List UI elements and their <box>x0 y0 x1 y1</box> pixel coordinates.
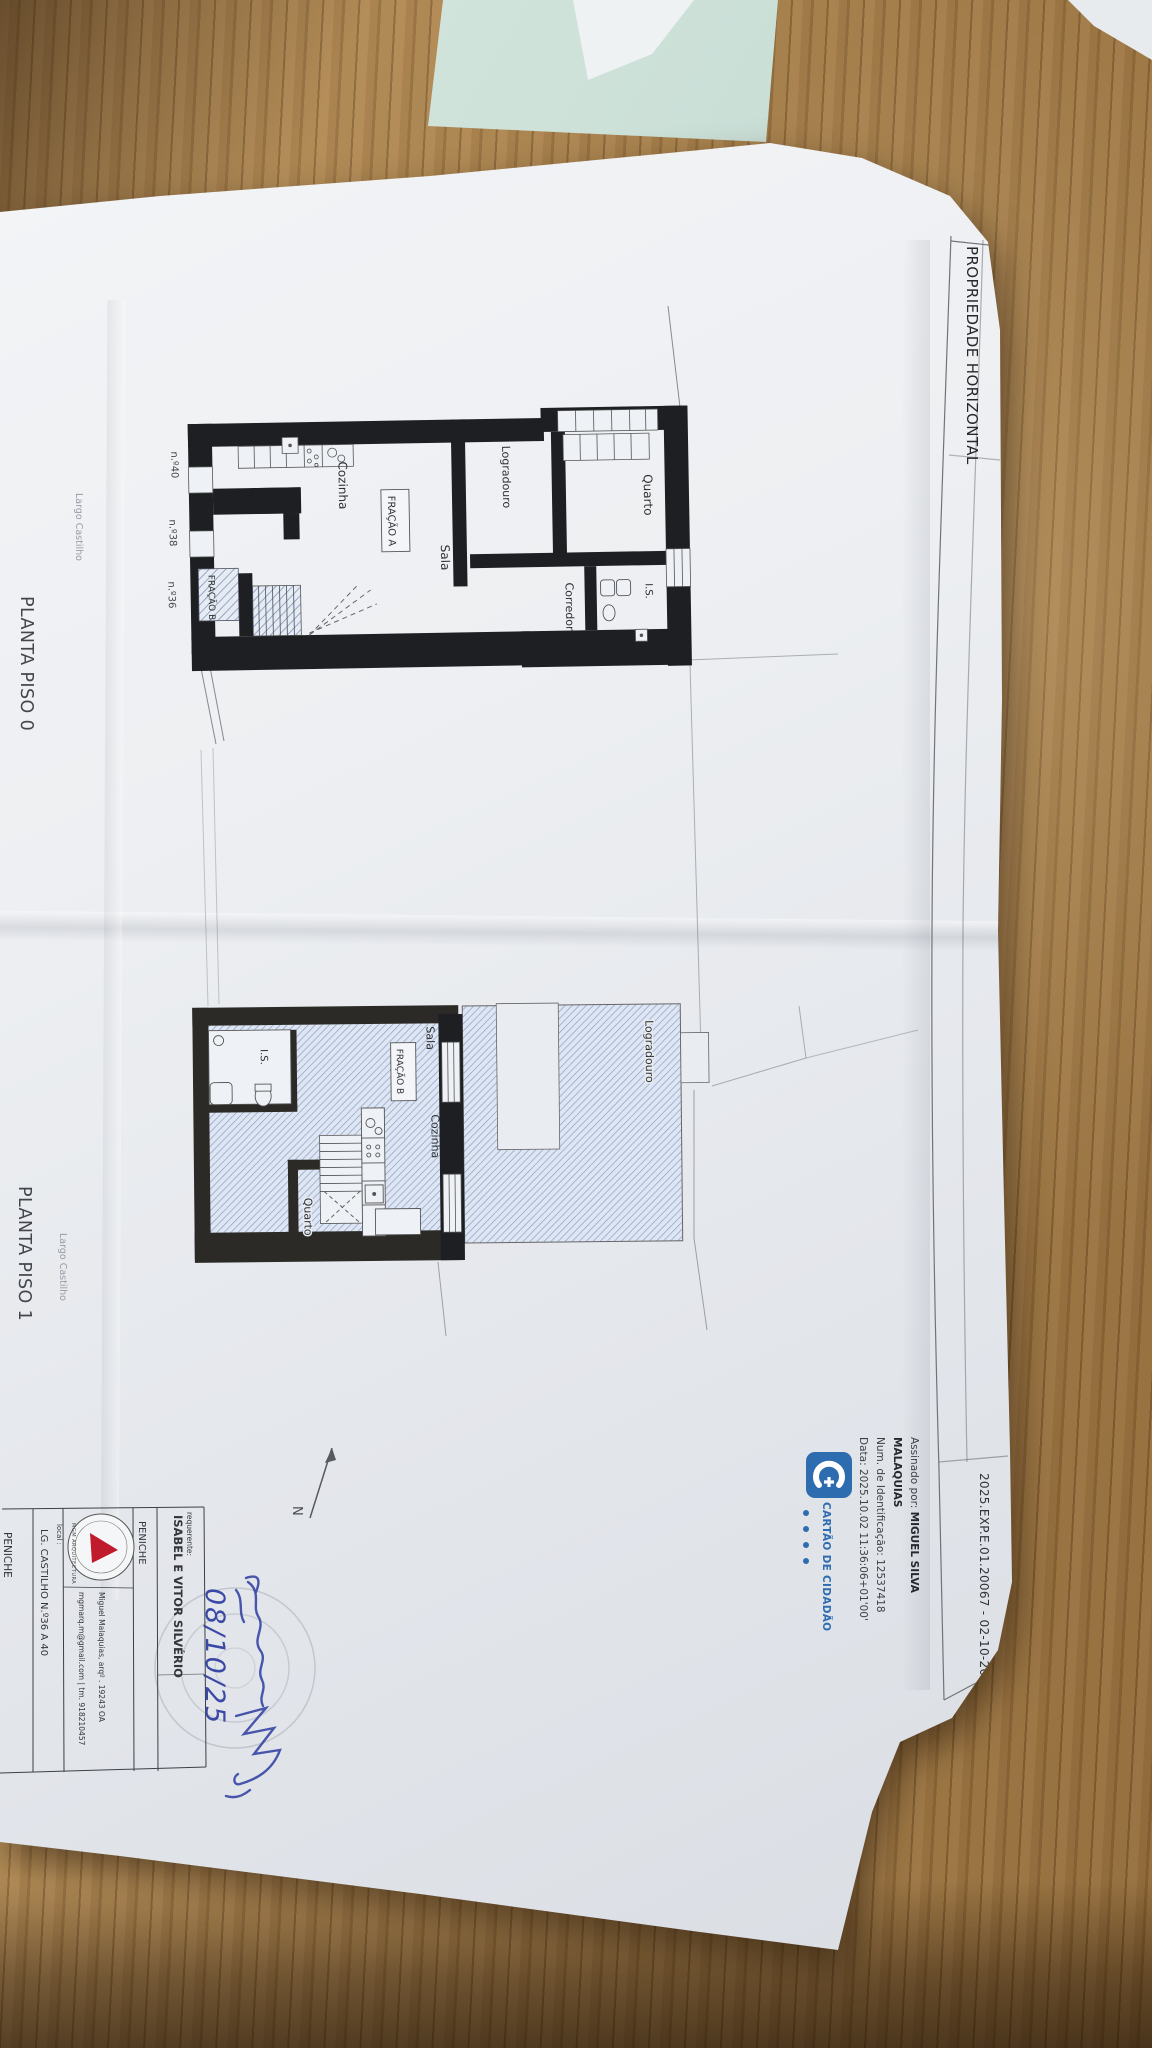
floorplan-piso1: Sala FRAÇÃO B Cozinha I.S. Quarto Lograd… <box>180 999 754 1350</box>
door-number-38: n.º38 <box>166 519 177 546</box>
architect-line-2: mgmarq.m@gmail.com | tm. 918210457 <box>77 1592 86 1746</box>
requerente-label: requerente: <box>185 1512 194 1556</box>
piso0-fracao-b-entry <box>198 568 239 621</box>
piso1-stairs <box>320 1135 363 1223</box>
north-label: N <box>289 1506 304 1516</box>
room-label-cozinha: Cozinha <box>428 1114 441 1158</box>
caption-planta-piso-0: PLANTA PISO 0 <box>16 596 36 731</box>
signature-id-line: Num. de Identificação: 12537418 <box>874 1437 886 1613</box>
room-label-quarto: Quarto <box>641 474 656 516</box>
card-dot <box>803 1510 809 1516</box>
room-label-is: I.S. <box>258 1049 269 1065</box>
card-dot <box>803 1526 809 1532</box>
architect-line-1: Miguel Malaquias, arqº . 19243 OA <box>97 1592 106 1723</box>
signature-line-2: MALAQUIAS <box>891 1437 903 1507</box>
local-label: local : <box>55 1524 63 1545</box>
piso1-logradouro-void <box>496 1003 560 1150</box>
signature-date-line: Data: 2025.10.02 11:36:06+01'00' <box>857 1437 869 1621</box>
room-label-fracao-b: FRAÇÃO B <box>205 575 217 621</box>
mgm-logo: MGM ARQUITECTURA <box>68 1514 134 1584</box>
document-sheet-wrap: N 08/10/25 <box>0 0 1152 2048</box>
requerente-city: PENICHE <box>136 1521 147 1565</box>
floorplan-piso0: Cozinha FRAÇÃO A Sala FRAÇÃO B Logradour… <box>145 400 710 710</box>
handwritten-signature <box>226 1577 280 1798</box>
piso1-annex <box>681 1032 710 1082</box>
door-number-36: n.º36 <box>165 581 176 608</box>
room-label-logradouro: Logradouro <box>642 1020 656 1083</box>
room-label-sala: Sala <box>423 1026 436 1050</box>
door-number-40: n.º40 <box>168 451 179 478</box>
street-label-piso1: Largo Castilho <box>57 1233 68 1301</box>
cartao-cidadao-label: CARTÃO DE CIDADÃO <box>820 1502 832 1631</box>
signature-prefix: Assinado por: <box>908 1437 920 1512</box>
local-address: LG. CASTILHO N.º36 A 40 <box>38 1529 49 1656</box>
sheet-reference: 2025.EXP.E.01.20067 - 02-10-2025 <box>977 1473 991 1692</box>
room-label-is: I.S. <box>643 583 654 599</box>
sheet-title: PROPRIEDADE HORIZONTAL <box>963 246 981 465</box>
card-dot <box>803 1558 809 1564</box>
room-label-quarto: Quarto <box>301 1198 314 1236</box>
signature-line-1: Assinado por: MIGUEL SILVA <box>908 1437 920 1593</box>
room-label-fracao-a: FRAÇÃO A <box>385 496 399 547</box>
signature-name-1: MIGUEL SILVA <box>908 1512 920 1593</box>
cartao-cidadao-icon <box>806 1452 852 1498</box>
room-label-corredor: Corredor <box>563 582 577 631</box>
document-sheet: N 08/10/25 <box>0 0 1152 2048</box>
requerente-name: ISABEL E VITOR SILVÉRIO <box>171 1515 186 1678</box>
room-label-fracao-b: FRAÇÃO B <box>394 1049 405 1095</box>
piso0-stairs <box>253 584 378 636</box>
room-label-logradouro: Logradouro <box>499 446 513 509</box>
north-arrow: N <box>289 1448 336 1518</box>
signature-name-2: MALAQUIAS <box>891 1437 903 1507</box>
room-label-sala: Sala <box>438 545 452 571</box>
local-city: PENICHE <box>1 1532 13 1578</box>
street-label-piso0: Largo Castilho <box>73 493 84 561</box>
photo-of-floorplan-document: N 08/10/25 <box>0 0 1152 2048</box>
mgm-logo-text: MGM ARQUITECTURA <box>70 1523 76 1584</box>
piso1-bath <box>208 1030 291 1107</box>
room-label-cozinha: Cozinha <box>335 461 350 509</box>
title-block: MGM ARQUITECTURA requerente: ISABEL E VI… <box>0 1495 215 1835</box>
caption-planta-piso-1: PLANTA PISO 1 <box>14 1186 34 1321</box>
card-dot <box>803 1542 809 1548</box>
